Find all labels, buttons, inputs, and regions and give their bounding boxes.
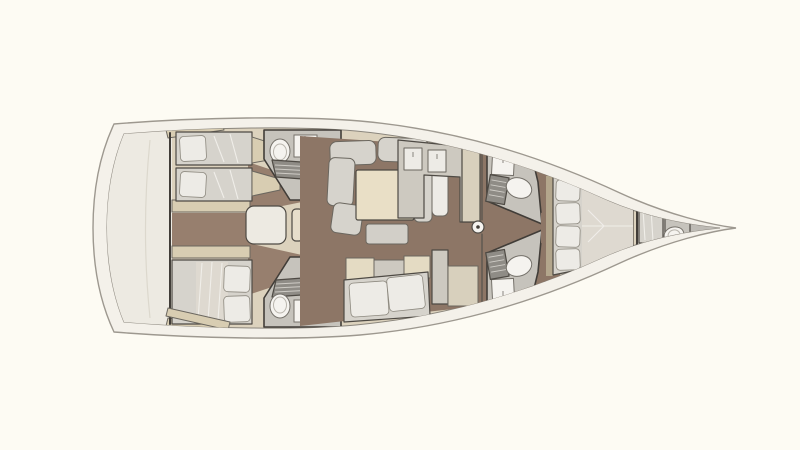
aft-cabin-starboard — [166, 260, 252, 330]
locker-strip-bottom — [172, 246, 250, 258]
pillow — [224, 296, 251, 323]
locker-strip-top — [172, 200, 250, 212]
pillow — [556, 226, 581, 248]
galley-locker — [404, 148, 422, 170]
pillow — [556, 203, 581, 225]
saloon-bench — [366, 224, 408, 244]
pillow — [224, 266, 251, 293]
pillow — [179, 171, 206, 197]
toilet — [270, 139, 290, 163]
companionway-landing — [246, 206, 286, 244]
galley-locker — [428, 150, 446, 172]
chaise-cushion — [349, 281, 389, 318]
yacht-floorplan — [0, 0, 800, 450]
shower-grate — [486, 175, 509, 205]
beige-step-unit — [448, 266, 478, 306]
tall-grey-unit — [432, 250, 448, 304]
mast-post — [472, 221, 484, 233]
galley-tall-unit — [462, 148, 480, 222]
low-locker — [346, 258, 374, 280]
pillow — [179, 135, 206, 161]
headboard — [546, 176, 553, 276]
mast-center — [476, 225, 480, 229]
bed-blanket — [196, 262, 228, 322]
sofa-left-seat — [327, 157, 355, 206]
corridor-floor — [172, 213, 252, 246]
chaise-cushion — [386, 274, 425, 312]
shower-grate — [486, 249, 509, 279]
pillow — [556, 249, 581, 271]
toilet — [270, 294, 290, 318]
